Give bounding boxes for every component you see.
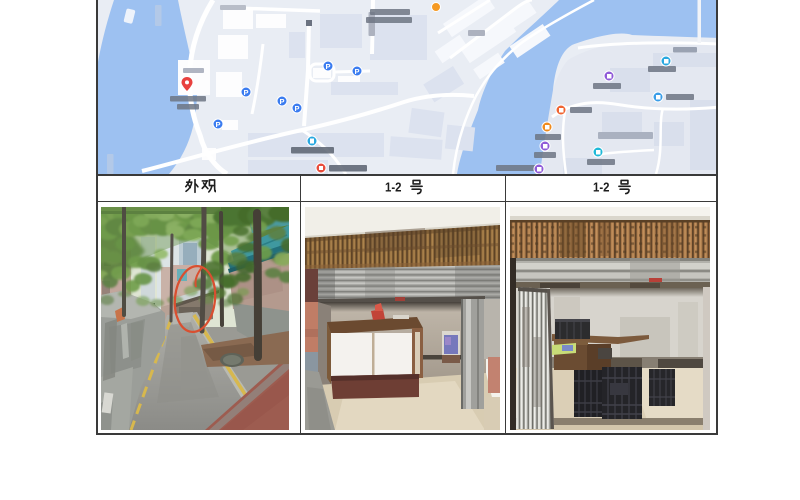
svg-text:P: P <box>243 88 248 97</box>
svg-text:P: P <box>279 97 284 106</box>
svg-text:P: P <box>215 120 220 129</box>
svg-text:P: P <box>354 67 359 76</box>
svg-text:1-2: 1-2 <box>593 181 610 195</box>
svg-text:1-2: 1-2 <box>385 181 402 195</box>
svg-text:P: P <box>294 104 299 113</box>
svg-text:P: P <box>325 62 330 71</box>
